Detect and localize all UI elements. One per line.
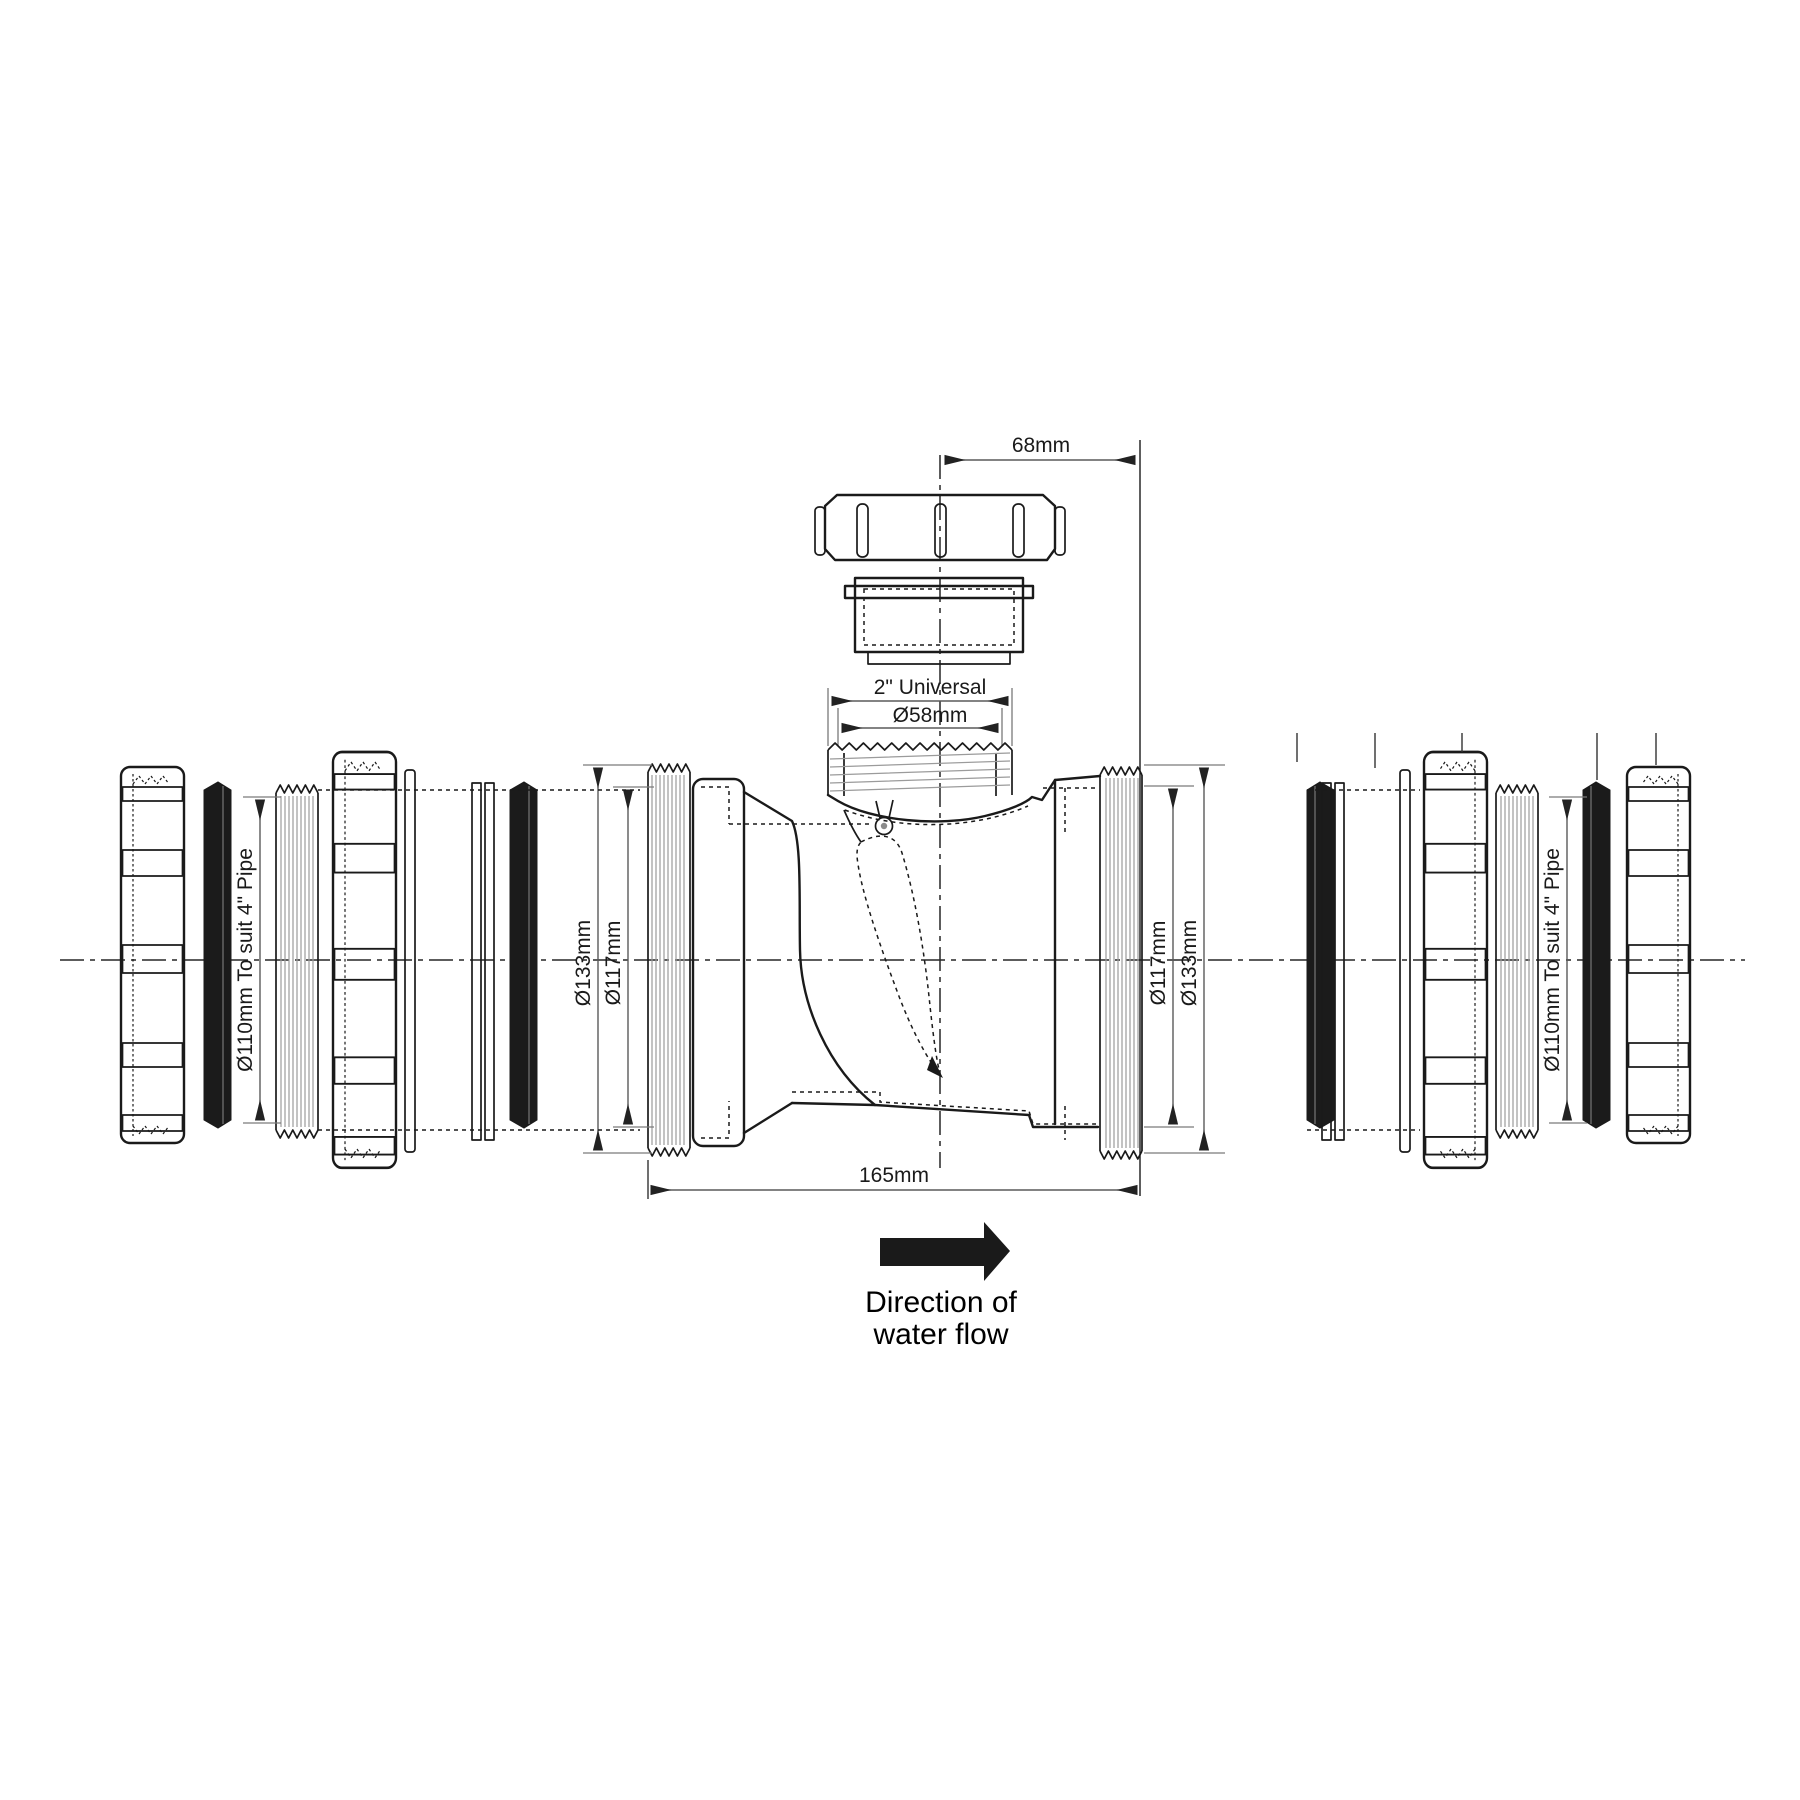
right-thread-collar	[1496, 785, 1538, 1138]
cap-grip-slot	[857, 504, 868, 557]
outlet-thread	[1100, 767, 1142, 1159]
right-fitting-kit	[1297, 733, 1690, 1168]
left-outer-nut	[121, 767, 184, 1143]
flap-membrane	[857, 836, 940, 1074]
dim-label-58mm: Ø58mm	[893, 704, 968, 727]
cap-grip-slot	[1013, 504, 1024, 557]
right-washer	[1335, 783, 1344, 1140]
drawing-page: 68mm 2" Universal Ø58mm	[0, 0, 1800, 1800]
left-washer-plate	[405, 770, 415, 1152]
right-inner-seal	[1307, 782, 1334, 1128]
dimension-left-id: Ø117mm	[602, 787, 654, 1127]
dim-label-left-id: Ø117mm	[602, 921, 625, 1006]
plug-spigot	[868, 652, 1010, 664]
left-washer	[472, 783, 481, 1140]
flow-direction-note: Direction of water flow	[865, 1222, 1017, 1351]
flow-label-line1: Direction of	[865, 1286, 1017, 1319]
dim-label-right-id: Ø117mm	[1147, 921, 1170, 1006]
dimension-branch-offset: 68mm	[946, 434, 1134, 460]
plug-flange	[845, 586, 1033, 598]
body-saddle	[828, 776, 1100, 821]
dimension-overall-length: 165mm	[648, 1160, 1136, 1199]
dimension-branch-od: Ø58mm	[838, 704, 1002, 746]
left-washer	[485, 783, 494, 1140]
blanking-plug	[845, 578, 1033, 664]
dim-label-68mm: 68mm	[1012, 434, 1070, 457]
cap-left-tab	[815, 507, 825, 555]
dim-label-left-pipe: Ø110mm To suit 4" Pipe	[234, 848, 257, 1072]
branch-spigot	[828, 743, 1012, 796]
technical-drawing: 68mm 2" Universal Ø58mm	[0, 0, 1800, 1800]
right-washer-plate	[1400, 770, 1410, 1152]
dim-label-right-pipe: Ø110mm To suit 4" Pipe	[1541, 848, 1564, 1072]
left-outer-seal	[204, 782, 231, 1128]
dim-label-2in-universal: 2" Universal	[874, 676, 987, 699]
right-outer-nut	[1627, 767, 1690, 1143]
cap-right-tab	[1055, 507, 1065, 555]
dim-label-right-od: Ø133mm	[1178, 920, 1201, 1006]
body-left-flange	[693, 779, 744, 1146]
flow-label-line2: water flow	[872, 1318, 1008, 1351]
left-inner-seal	[510, 782, 537, 1128]
flow-direction-arrow-icon	[880, 1222, 1010, 1281]
flap-valve	[844, 800, 943, 1078]
dim-label-left-od: Ø133mm	[572, 920, 595, 1006]
flap-hinge-center	[881, 823, 887, 829]
body-cone-profile	[744, 792, 875, 1105]
right-outer-seal	[1583, 782, 1610, 1128]
valve-body	[648, 743, 1142, 1159]
body-cone-bottom-chamfer	[744, 1103, 792, 1133]
dim-label-165mm: 165mm	[859, 1164, 929, 1187]
right-kit-witness-lines	[1297, 733, 1656, 780]
left-thread-collar	[276, 785, 318, 1138]
